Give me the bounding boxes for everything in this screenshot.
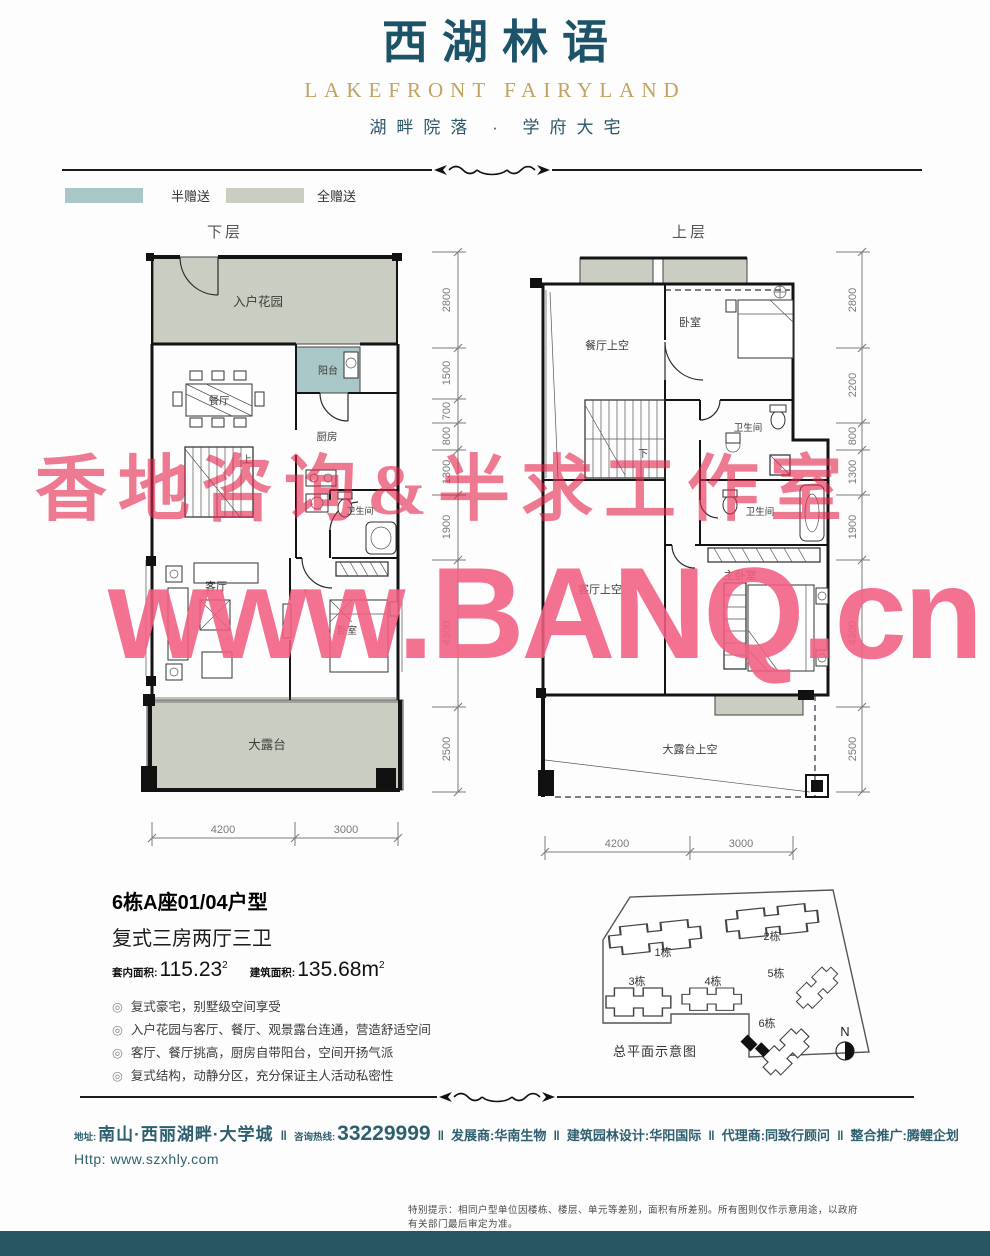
footer: 地址: 南山·西丽湖畔·大学城 ‖ 咨询热线: 33229999 ‖ 发展商: … xyxy=(74,1120,934,1167)
svg-text:2800: 2800 xyxy=(441,288,453,312)
half-gift-swatch xyxy=(65,188,143,203)
svg-text:2500: 2500 xyxy=(441,737,453,761)
room-label-master: 主卧室 xyxy=(724,568,757,582)
svg-text:3000: 3000 xyxy=(729,838,753,850)
svg-text:4300: 4300 xyxy=(847,621,859,645)
site-plan: 1栋 2栋 3栋 4栋 5栋 6栋 N 总平面示意图 xyxy=(595,880,890,1080)
room-label-bath2: 卫生间 xyxy=(746,506,775,518)
build-area-value: 135.68m xyxy=(297,958,379,982)
svg-text:2800: 2800 xyxy=(847,288,859,312)
svg-text:800: 800 xyxy=(441,427,453,445)
room-label-living: 客厅 xyxy=(205,579,227,593)
divider-line xyxy=(80,1096,437,1098)
separator: ‖ xyxy=(438,1128,444,1143)
upper-floor-title: 上层 xyxy=(615,221,765,242)
inner-area-value: 115.23 xyxy=(160,958,223,982)
tagline: 湖畔院落 · 学府大宅 xyxy=(0,113,990,138)
build-area-sup: 2 xyxy=(379,960,385,971)
separator: ‖ xyxy=(281,1128,287,1143)
promo-label: 整合推广: xyxy=(851,1125,907,1144)
svg-text:1300: 1300 xyxy=(441,460,453,484)
room-label-dining-void: 餐厅上空 xyxy=(585,338,629,352)
svg-text:N: N xyxy=(840,1024,849,1039)
logo-chinese: 西湖林语 xyxy=(0,6,990,72)
full-gift-label: 全赠送 xyxy=(317,186,356,205)
feature-text: 入户花园与客厅、餐厅、观景露台连通，营造舒适空间 xyxy=(131,1019,431,1042)
hotline-number: 33229999 xyxy=(337,1122,430,1146)
svg-text:1900: 1900 xyxy=(441,515,453,539)
brochure-page: 西湖林语 LAKEFRONT FAIRYLAND 湖畔院落 · 学府大宅 半赠送… xyxy=(0,0,990,1256)
upper-furniture xyxy=(708,286,828,671)
hotline-label: 咨询热线: xyxy=(294,1129,335,1143)
feature-list: ◎复式豪宅，别墅级空间享受 ◎入户花园与客厅、餐厅、观景露台连通，营造舒适空间 … xyxy=(112,996,492,1088)
room-label-bedroom: 卧室 xyxy=(337,624,357,637)
divider-line xyxy=(557,1096,914,1098)
unit-name: 6栋A座01/04户型 xyxy=(112,886,492,915)
feature-text: 复式结构，动静分区，充分保证主人活动私密性 xyxy=(131,1065,394,1088)
svg-text:1栋: 1栋 xyxy=(654,945,671,959)
bottom-divider xyxy=(80,1090,914,1104)
feature-item: ◎入户花园与客厅、餐厅、观景露台连通，营造舒适空间 xyxy=(112,1019,492,1042)
svg-text:4300: 4300 xyxy=(441,621,453,645)
stairs-up-label: 上 xyxy=(242,454,252,466)
svg-text:4200: 4200 xyxy=(605,838,629,850)
feature-item: ◎复式豪宅，别墅级空间享受 xyxy=(112,996,492,1019)
site-plan-caption: 总平面示意图 xyxy=(613,1044,697,1059)
footer-contact-line: 地址: 南山·西丽湖畔·大学城 ‖ 咨询热线: 33229999 ‖ 发展商: … xyxy=(74,1120,934,1146)
svg-text:6栋: 6栋 xyxy=(758,1016,775,1030)
upper-doors xyxy=(665,342,720,568)
room-label-garden: 入户花园 xyxy=(233,294,283,309)
room-label-bedroom2: 卧室 xyxy=(679,315,701,329)
svg-text:2500: 2500 xyxy=(847,737,859,761)
feature-text: 客厅、餐厅挑高，厨房自带阳台，空间开扬气派 xyxy=(131,1042,394,1065)
svg-text:1300: 1300 xyxy=(847,460,859,484)
svg-text:5栋: 5栋 xyxy=(767,966,784,980)
floor-plan-lower: 入户花园 阳台 餐厅 厨房 卫生间 上 客厅 卧室 大露台 2800 1500 … xyxy=(140,245,485,870)
inner-area-label: 套内面积: xyxy=(112,965,158,980)
agent-value: 同致行顾问 xyxy=(765,1125,830,1144)
feature-item: ◎客厅、餐厅挑高，厨房自带阳台，空间开扬气派 xyxy=(112,1042,492,1065)
design-label: 建筑园林设计: xyxy=(567,1125,649,1144)
area-line: 套内面积: 115.23 2 建筑面积: 135.68m 2 xyxy=(112,958,492,982)
svg-text:1500: 1500 xyxy=(441,361,453,385)
room-label-living-void: 客厅上空 xyxy=(578,582,622,596)
logo-english: LAKEFRONT FAIRYLAND xyxy=(0,78,990,103)
address-value: 南山·西丽湖畔·大学城 xyxy=(98,1120,273,1145)
developer-label: 发展商: xyxy=(451,1125,494,1144)
room-label-dining: 餐厅 xyxy=(209,394,230,407)
divider-line xyxy=(552,169,922,171)
bullet-icon: ◎ xyxy=(112,1019,123,1042)
upper-stairs xyxy=(585,400,665,478)
feature-item: ◎复式结构，动静分区，充分保证主人活动私密性 xyxy=(112,1065,492,1088)
svg-text:4200: 4200 xyxy=(211,824,235,836)
svg-text:1900: 1900 xyxy=(847,515,859,539)
svg-text:2200: 2200 xyxy=(847,373,859,397)
room-label-balcony: 阳台 xyxy=(318,364,338,377)
bottom-color-bar xyxy=(0,1231,990,1256)
feature-text: 复式豪宅，别墅级空间享受 xyxy=(131,996,281,1019)
lower-fills xyxy=(147,257,403,790)
stairs-down-label: 下 xyxy=(638,449,648,460)
separator: ‖ xyxy=(553,1128,559,1143)
svg-text:3000: 3000 xyxy=(334,824,358,836)
inner-area-sup: 2 xyxy=(222,960,228,971)
floor-plan-upper: 餐厅上空 卧室 卫生间 卫生间 下 主卧室 客厅上空 大露台上空 2800 22… xyxy=(530,245,875,870)
full-gift-swatch xyxy=(226,188,304,203)
address-label: 地址: xyxy=(74,1129,96,1143)
unit-layout: 复式三房两厅三卫 xyxy=(112,922,492,951)
separator: ‖ xyxy=(708,1128,714,1143)
bullet-icon: ◎ xyxy=(112,1042,123,1065)
unit-info: 6栋A座01/04户型 复式三房两厅三卫 套内面积: 115.23 2 建筑面积… xyxy=(112,886,492,1088)
room-label-kitchen: 厨房 xyxy=(317,430,338,443)
agent-label: 代理商: xyxy=(722,1125,765,1144)
top-divider xyxy=(62,163,922,177)
design-value: 华阳国际 xyxy=(649,1125,701,1144)
scroll-ornament-icon xyxy=(432,163,552,177)
lower-floor-title: 下层 xyxy=(150,221,300,242)
half-gift-label: 半赠送 xyxy=(171,186,210,205)
north-compass-icon: N xyxy=(836,1024,854,1060)
build-area-label: 建筑面积: xyxy=(250,965,296,980)
bullet-icon: ◎ xyxy=(112,996,123,1019)
gift-area-legend: 半赠送 全赠送 xyxy=(65,186,356,205)
promo-value: 腾鲤企划 xyxy=(907,1125,959,1144)
room-label-bath: 卫生间 xyxy=(346,505,373,516)
room-label-terrace: 大露台 xyxy=(248,737,286,752)
separator: ‖ xyxy=(837,1128,843,1143)
scroll-ornament-icon xyxy=(437,1090,557,1104)
room-label-bath1: 卫生间 xyxy=(734,422,763,434)
svg-text:3栋: 3栋 xyxy=(628,974,645,988)
upper-room-labels: 餐厅上空 卧室 卫生间 卫生间 下 主卧室 客厅上空 大露台上空 xyxy=(578,315,774,756)
svg-text:800: 800 xyxy=(847,427,859,445)
developer-value: 华南生物 xyxy=(494,1125,546,1144)
disclaimer-text: 特别提示：相同户型单位因楼栋、楼层、单元等差别，面积有所差别。所有图则仅作示意用… xyxy=(408,1202,858,1230)
bullet-icon: ◎ xyxy=(112,1065,123,1088)
svg-text:2栋: 2栋 xyxy=(763,929,780,943)
svg-text:4栋: 4栋 xyxy=(704,974,721,988)
website-url: Http: www.szxhly.com xyxy=(74,1151,934,1167)
divider-line xyxy=(62,169,432,171)
room-label-terrace-void: 大露台上空 xyxy=(663,742,718,756)
svg-text:700: 700 xyxy=(441,402,453,420)
header: 西湖林语 LAKEFRONT FAIRYLAND 湖畔院落 · 学府大宅 xyxy=(0,6,990,138)
